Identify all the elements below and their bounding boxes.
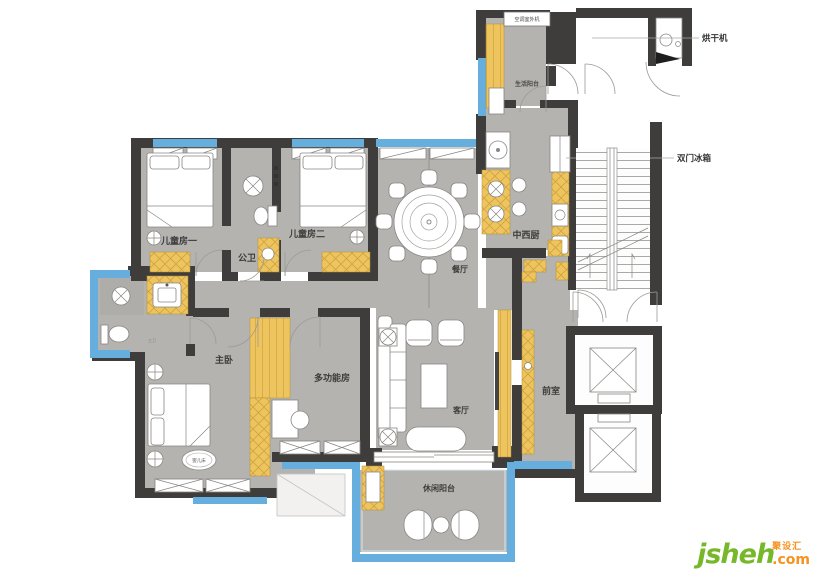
staircase [573,148,657,322]
room-label-kids1: 儿童房一 [160,235,197,247]
ac-unit-label: 空调室外机 [514,16,539,23]
shoe-cabinet [548,240,562,256]
tv-icon [495,352,499,410]
fridge-label: 双门冰箱 [677,153,712,164]
lounge-chair-icon [404,510,432,540]
cabinet-column [250,398,270,476]
lounge-chair-icon [451,510,479,540]
room-label-living: 客厅 [452,405,469,415]
room-label-front-room: 前室 [542,385,560,397]
room-label-master: 主卧 [215,354,233,366]
watermark-logo: jsheh 聚设汇 .com [697,541,810,568]
room-label-multi: 多功能房 [314,372,350,384]
lobby-cabinet [522,330,534,454]
floor-plan: 婴儿床 [0,0,820,580]
logo-brand-text: jsheh [697,541,774,568]
crib-label: 婴儿床 [192,457,206,464]
room-label-kitchen: 中西厨 [512,229,539,241]
island-counter [482,170,510,234]
room-label-dining: 餐厅 [451,264,468,274]
wardrobe [150,252,190,272]
wardrobe-column [250,318,290,398]
master-bath-label: 主卫 [148,337,156,343]
logo-cn-text: 聚设汇 [772,543,810,552]
elevators [575,335,653,493]
stool-icon [291,411,309,429]
dryer-label: 烘干机 [702,33,728,44]
stool-icon [512,202,526,216]
room-label-kids2: 儿童房二 [288,228,325,240]
side-table-icon [433,517,449,533]
logo-tld-text: .com [772,553,810,567]
floor-plan-page: 婴儿床 [0,0,820,580]
armchair-icon [406,320,432,346]
toilet-icon [254,207,268,225]
stool-icon [512,178,526,192]
armchair-icon [438,320,464,346]
room-label-leisure-balcony: 休闲阳台 [422,483,455,493]
shoe-cabinet [522,272,536,282]
wardrobe [322,252,370,272]
room-label-service-balcony: 生活阳台 [515,80,539,88]
toilet-icon [109,326,129,342]
coffee-table [421,364,447,408]
tv-cabinet [498,310,511,457]
room-label-public-bath: 公卫 [238,253,256,264]
shoe-cabinet [524,260,546,272]
shoe-cabinet [556,262,568,280]
bench [406,427,466,451]
